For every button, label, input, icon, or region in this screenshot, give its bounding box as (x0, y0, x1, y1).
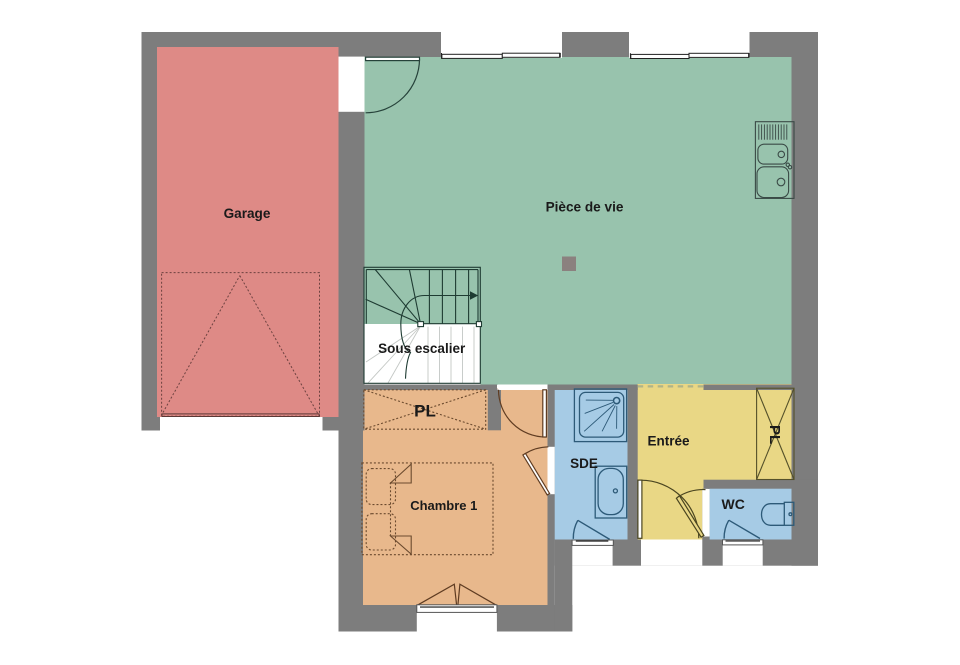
svg-text:PL: PL (766, 425, 783, 444)
svg-text:SDE: SDE (570, 456, 598, 471)
svg-text:Sous escalier: Sous escalier (378, 341, 466, 356)
svg-text:Chambre 1: Chambre 1 (410, 498, 477, 513)
svg-text:Garage: Garage (224, 206, 271, 221)
svg-text:WC: WC (722, 496, 745, 512)
svg-text:Pièce de vie: Pièce de vie (546, 200, 624, 215)
svg-text:PL: PL (414, 402, 436, 421)
svg-text:Entrée: Entrée (647, 434, 690, 449)
